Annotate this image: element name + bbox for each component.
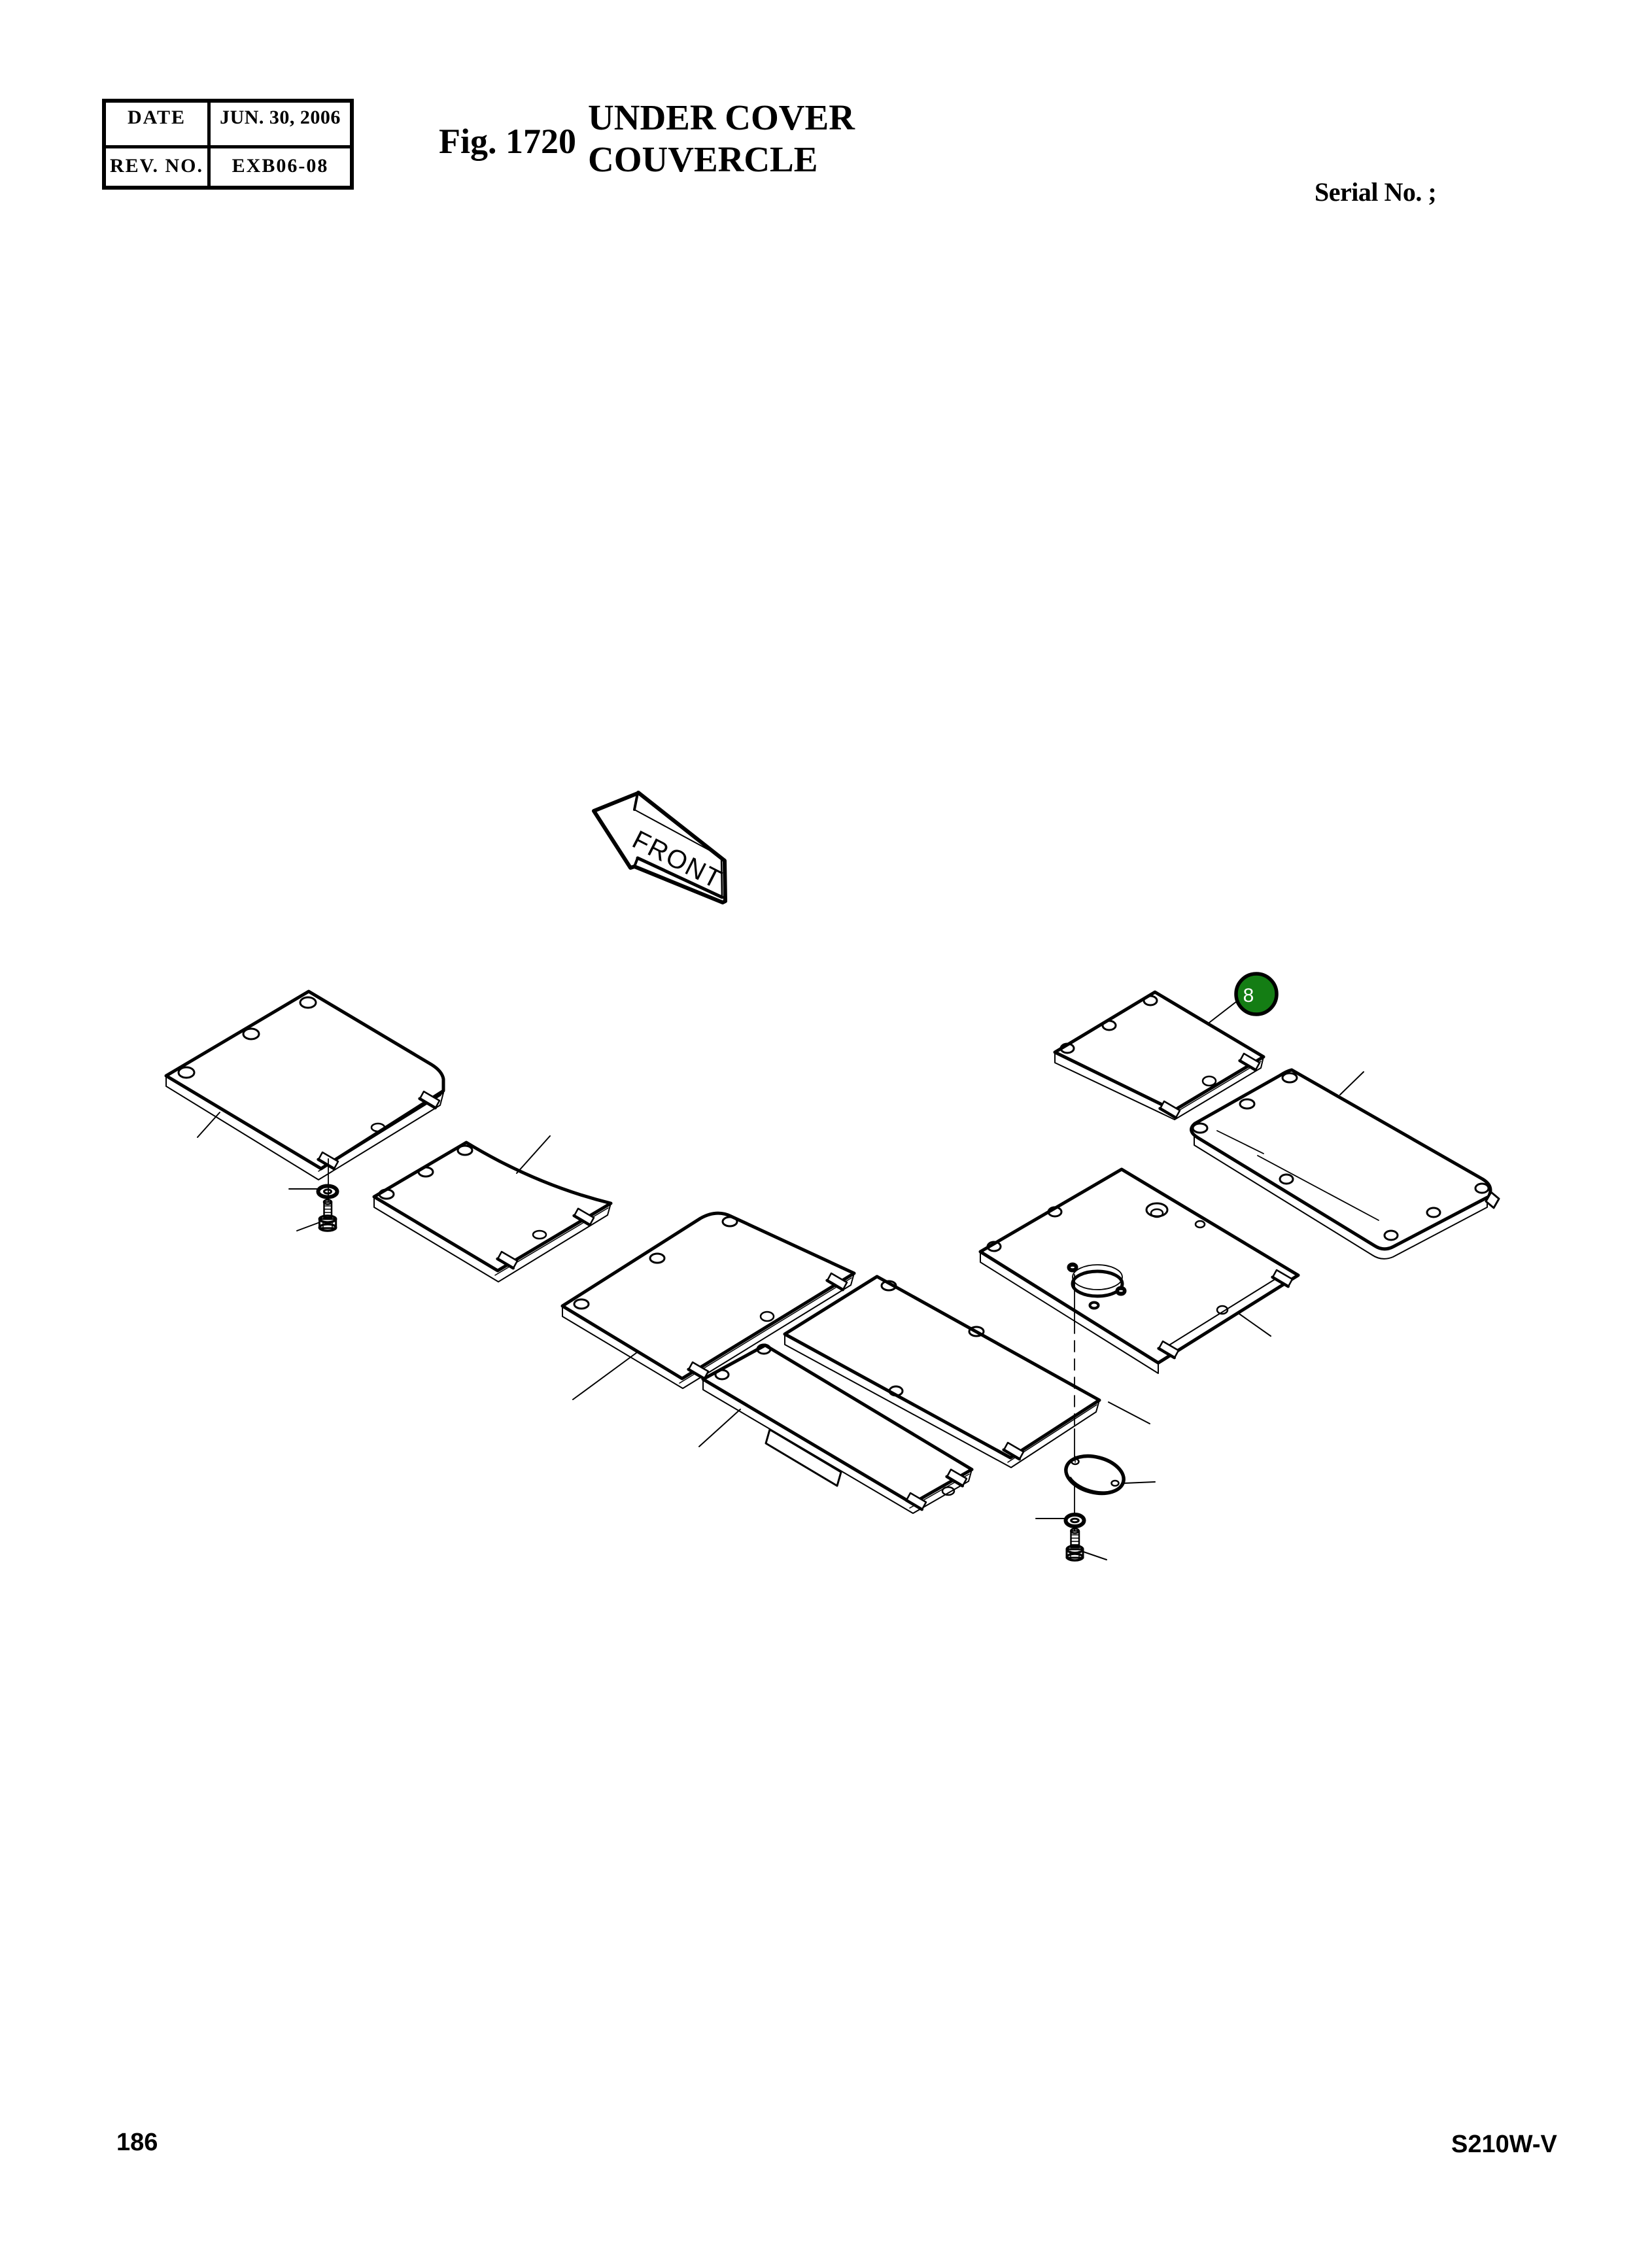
svg-text:8: 8 [1243, 985, 1254, 1006]
